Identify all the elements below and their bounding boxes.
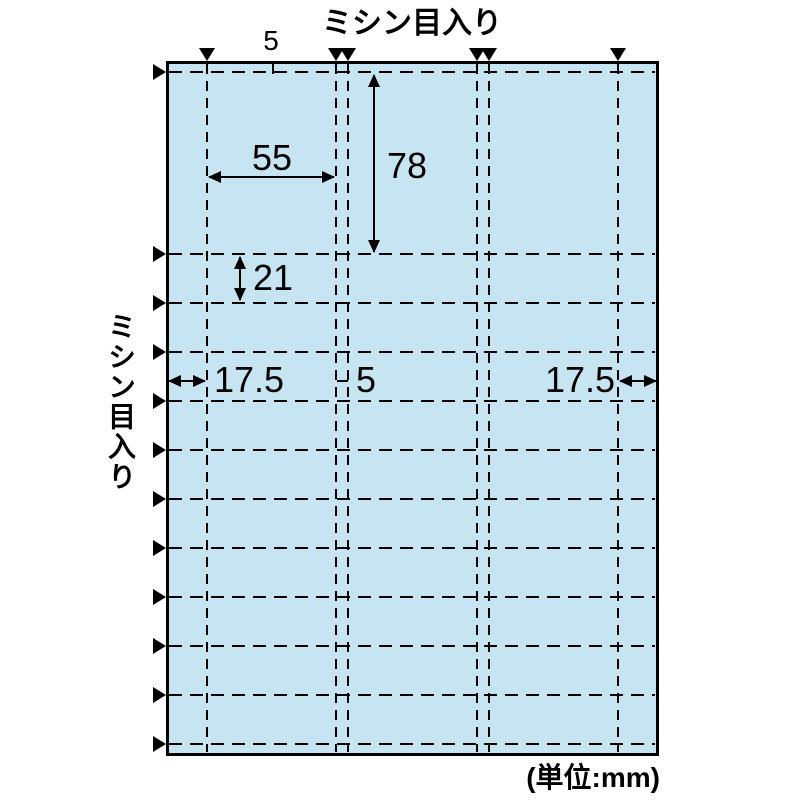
perforation-marker-top-icon xyxy=(610,48,626,61)
perforation-line-vertical-1 xyxy=(206,64,208,752)
perforation-line-horizontal-7 xyxy=(169,498,655,500)
perforation-marker-left-icon xyxy=(153,540,166,556)
perforation-line-vertical-3 xyxy=(347,64,349,752)
left-perforation-caption: ミシン目入り xyxy=(106,312,134,492)
perforated-sheet-diagram: 5 55 78 21 17.5 5 17.5 ミシン目入り ミシン目入り (単位… xyxy=(0,0,800,800)
perforation-marker-left-icon xyxy=(153,491,166,507)
perforation-line-vertical-4 xyxy=(476,64,478,752)
right-margin-arrow xyxy=(620,380,656,382)
perforation-line-horizontal-4 xyxy=(169,351,655,353)
perforation-marker-left-icon xyxy=(153,246,166,262)
section-height-dim-label: 78 xyxy=(387,148,427,184)
perforation-line-horizontal-8 xyxy=(169,547,655,549)
top-margin-tick xyxy=(272,61,274,74)
perforation-marker-left-icon xyxy=(153,393,166,409)
row-height-dim-label: 21 xyxy=(253,260,293,296)
perforation-line-horizontal-6 xyxy=(169,449,655,451)
unit-note: (単位:mm) xyxy=(526,764,660,792)
left-margin-dim-label: 17.5 xyxy=(214,362,284,398)
right-margin-dim-label: 17.5 xyxy=(545,362,615,398)
perforation-line-horizontal-12 xyxy=(169,743,655,745)
perforation-line-vertical-6 xyxy=(617,64,619,752)
perforation-marker-top-icon xyxy=(481,48,497,61)
perforation-marker-left-icon xyxy=(153,295,166,311)
perforation-line-horizontal-11 xyxy=(169,694,655,696)
perforation-line-vertical-2 xyxy=(335,64,337,752)
perforation-marker-top-icon xyxy=(340,48,356,61)
perforation-line-vertical-5 xyxy=(488,64,490,752)
card-width-dim-label: 55 xyxy=(252,140,292,176)
gutter-tick xyxy=(337,380,348,382)
perforation-line-horizontal-10 xyxy=(169,645,655,647)
perforation-line-horizontal-1 xyxy=(169,71,655,73)
section-height-arrow xyxy=(373,75,375,252)
perforation-marker-left-icon xyxy=(153,442,166,458)
perforation-marker-left-icon xyxy=(153,64,166,80)
perforation-line-horizontal-3 xyxy=(169,302,655,304)
perforation-line-horizontal-9 xyxy=(169,596,655,598)
perforation-marker-top-icon xyxy=(199,48,215,61)
perforation-marker-left-icon xyxy=(153,344,166,360)
top-margin-dim-label: 5 xyxy=(263,27,279,55)
perforation-line-horizontal-2 xyxy=(169,253,655,255)
top-perforation-caption: ミシン目入り xyxy=(322,9,502,39)
perforation-marker-left-icon xyxy=(153,638,166,654)
perforation-marker-left-icon xyxy=(153,687,166,703)
gutter-dim-label: 5 xyxy=(356,362,376,398)
row-height-arrow xyxy=(239,257,241,300)
perforation-marker-left-icon xyxy=(153,589,166,605)
perforation-line-horizontal-5 xyxy=(169,400,655,402)
left-margin-arrow xyxy=(169,380,205,382)
perforation-marker-left-icon xyxy=(153,736,166,752)
